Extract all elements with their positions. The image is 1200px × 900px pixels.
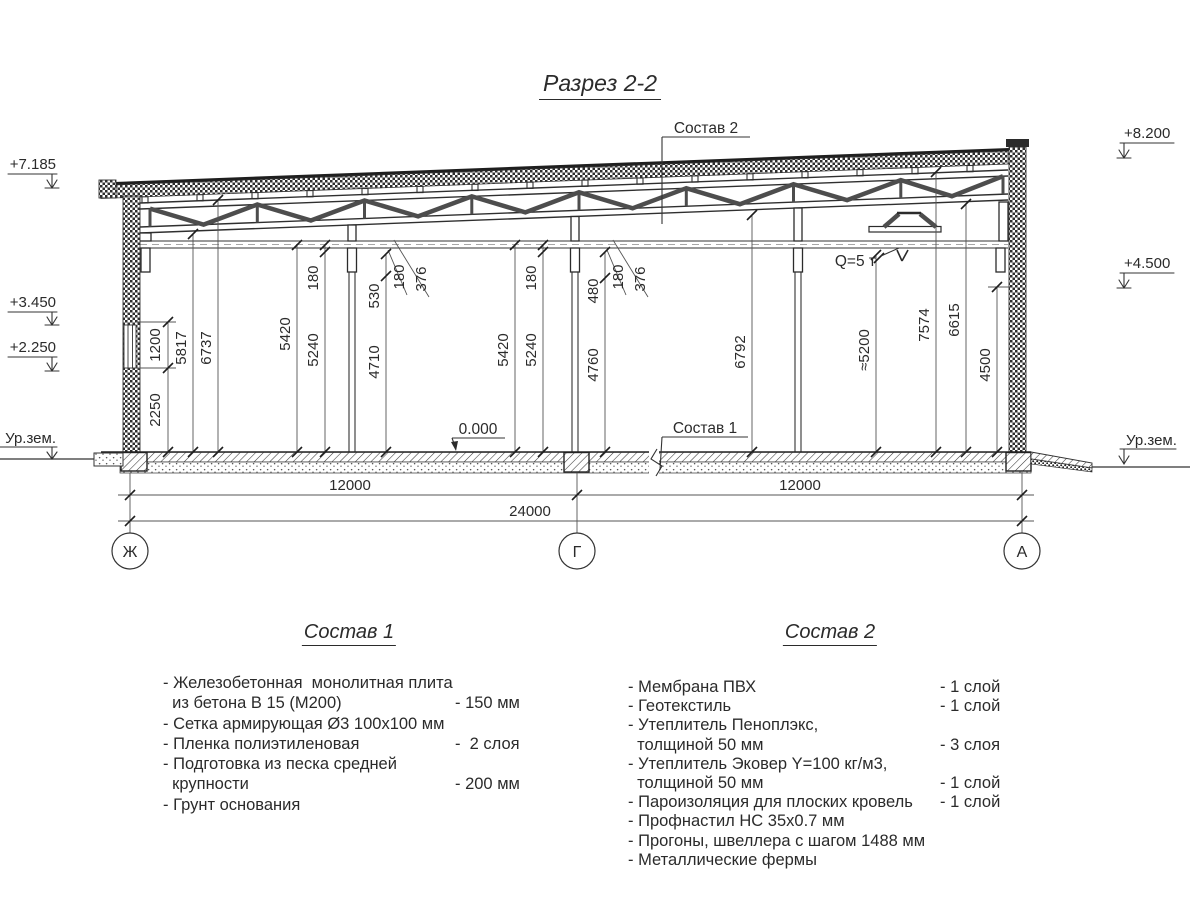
roof-edge-cap — [99, 180, 116, 198]
dim-376-mid: 376 — [632, 266, 649, 291]
wall-right — [1009, 147, 1026, 453]
spec-text: - Утеплитель Пеноплэкс, — [628, 716, 818, 734]
horizontal-dimensions: 12000 12000 24000 Ж Г А — [112, 470, 1040, 569]
spec-value: - 2 слоя — [455, 734, 520, 754]
spec-text: толщиной 50 мм — [628, 736, 764, 754]
spec-text: - Мембрана ПВХ — [628, 678, 756, 696]
elevation-mark-3450: +3.450 — [8, 294, 59, 325]
spec-text: - Утеплитель Эковер Y=100 кг/м3, — [628, 755, 887, 773]
spec-value: - 1 слой — [940, 678, 1000, 697]
elevation-text-4500: +4.500 — [1124, 255, 1170, 272]
foundation-middle — [564, 453, 589, 473]
elevation-text-2250: +2.250 — [10, 339, 56, 356]
spec-text: толщиной 50 мм — [628, 774, 764, 792]
spec-row: - Мембрана ПВХ- 1 слой — [628, 678, 1010, 697]
spec-row: толщиной 50 мм- 3 слоя — [628, 736, 1010, 755]
dim-376-left: 376 — [413, 266, 430, 291]
dim-12000-left: 12000 — [329, 477, 371, 494]
drawing-sheet: 2250 1200 5817 6737 5420 5240 180 530 47… — [0, 0, 1200, 900]
callout-sostav2-text: Состав 2 — [674, 120, 738, 137]
elevation-mark-2250: +2.250 — [8, 339, 59, 371]
axis-label-zh: Ж — [123, 544, 138, 561]
spec-text: - Пленка полиэтиленовая — [163, 735, 359, 753]
composition-2-rows: - Мембрана ПВХ- 1 слой - Геотекстиль- 1 … — [628, 678, 1010, 870]
crane-hoist — [869, 213, 941, 261]
ground-text-left: Ур.зем. — [5, 430, 56, 447]
wall-left — [123, 196, 140, 453]
dim-180-left-leader: 180 — [391, 264, 408, 289]
composition-2-title: Состав 2 — [783, 621, 877, 646]
spec-value: - 3 слоя — [940, 736, 1000, 755]
ground-level-mark-left: Ур.зем. — [0, 430, 57, 459]
dim-2250: 2250 — [147, 393, 164, 426]
spec-text: - Железобетонная монолитная плита — [163, 674, 453, 692]
spec-text: - Подготовка из песка средней — [163, 755, 397, 773]
foundation-left — [121, 453, 147, 472]
composition-1-rows: - Железобетонная монолитная плита из бет… — [163, 673, 545, 815]
parapet-cap-right — [1006, 139, 1029, 147]
spec-row: из бетона В 15 (М200)- 150 мм — [163, 693, 545, 713]
dim-6615: 6615 — [946, 303, 963, 336]
axis-label-a: А — [1017, 544, 1028, 561]
spec-row: - Пленка полиэтиленовая- 2 слоя — [163, 734, 545, 754]
crane-capacity-text: Q=5 т — [835, 253, 876, 270]
spec-row: толщиной 50 мм- 1 слой — [628, 774, 1010, 793]
dim-5200: ≈5200 — [856, 329, 873, 371]
axis-bubbles: Ж Г А — [112, 533, 1040, 569]
spec-row: - Утеплитель Эковер Y=100 кг/м3, — [628, 755, 1010, 774]
spec-text: - Грунт основания — [163, 796, 300, 814]
elevation-mark-4500: +4.500 — [1117, 255, 1174, 288]
dim-4760: 4760 — [585, 348, 602, 381]
dim-7574: 7574 — [916, 308, 933, 341]
callout-zero-level: 0.000 — [451, 421, 505, 451]
spec-row: - Металлические фермы — [628, 851, 1010, 870]
dim-180-mid-leader: 180 — [610, 264, 627, 289]
zero-level-arrowhead — [451, 441, 458, 451]
dim-5817: 5817 — [173, 331, 190, 364]
spec-row: - Подготовка из песка средней — [163, 754, 545, 774]
dim-6792: 6792 — [732, 335, 749, 368]
runway-beam — [140, 241, 1008, 248]
dim-5420-left: 5420 — [277, 317, 294, 350]
floor-slab — [0, 449, 1190, 476]
spec-value: - 200 мм — [455, 774, 520, 794]
foundation-right — [1006, 453, 1031, 472]
apron-left — [94, 453, 123, 466]
dim-6737: 6737 — [198, 331, 215, 364]
spec-text: - Геотекстиль — [628, 697, 731, 715]
elevation-mark-7185: +7.185 — [8, 156, 59, 188]
elevation-mark-8200: +8.200 — [1117, 125, 1174, 158]
callout-crane: Q=5 т — [835, 248, 899, 270]
dim-4500: 4500 — [977, 348, 994, 381]
elevation-text-3450: +3.450 — [10, 294, 56, 311]
spec-text: - Прогоны, швеллера с шагом 1488 мм — [628, 832, 925, 850]
building-section — [0, 139, 1190, 476]
dim-480: 480 — [585, 278, 602, 303]
dim-5420-mid: 5420 — [495, 333, 512, 366]
dim-12000-right: 12000 — [779, 477, 821, 494]
zero-level-text: 0.000 — [459, 421, 498, 438]
spec-text: - Металлические фермы — [628, 851, 817, 869]
spec-row: - Сетка армирующая Ø3 100х100 мм — [163, 714, 545, 734]
spec-text: крупности — [163, 775, 249, 793]
spec-value: - 1 слой — [940, 697, 1000, 716]
dim-1200: 1200 — [147, 328, 164, 361]
spec-text: - Пароизоляция для плоских кровель — [628, 793, 913, 811]
spec-row: крупности- 200 мм — [163, 774, 545, 794]
crane-trolley-plate — [869, 227, 941, 233]
drawing-title: Разрез 2-2 — [539, 70, 661, 100]
spec-row: - Профнастил НС 35х0.7 мм — [628, 812, 1010, 831]
elevation-text-8200: +8.200 — [1124, 125, 1170, 142]
dim-530: 530 — [366, 283, 383, 308]
spec-text: из бетона В 15 (М200) — [163, 694, 342, 712]
spec-row: - Прогоны, швеллера с шагом 1488 мм — [628, 832, 1010, 851]
window-left — [124, 325, 136, 368]
ground-level-mark-right: Ур.зем. — [1119, 432, 1177, 464]
axis-label-g: Г — [573, 544, 582, 561]
spec-row: - Пароизоляция для плоских кровель- 1 сл… — [628, 793, 1010, 812]
dim-5240-left: 5240 — [305, 333, 322, 366]
spec-value: - 1 слой — [940, 793, 1000, 812]
crane-hook-icon — [897, 250, 908, 261]
ground-text-right: Ур.зем. — [1126, 432, 1177, 449]
dim-180-left: 180 — [305, 265, 322, 290]
spec-row: - Утеплитель Пеноплэкс, — [628, 716, 1010, 735]
dim-4710: 4710 — [366, 345, 383, 378]
dim-24000: 24000 — [509, 503, 551, 520]
spec-value: - 1 слой — [940, 774, 1000, 793]
spec-row: - Геотекстиль- 1 слой — [628, 697, 1010, 716]
dim-5240-mid: 5240 — [523, 333, 540, 366]
dim-180-mid: 180 — [523, 265, 540, 290]
elevation-text-7185: +7.185 — [10, 156, 56, 173]
spec-value: - 150 мм — [455, 693, 520, 713]
spec-row: - Железобетонная монолитная плита — [163, 673, 545, 693]
spec-text: - Профнастил НС 35х0.7 мм — [628, 812, 845, 830]
callout-sostav1-text: Состав 1 — [673, 420, 737, 437]
composition-1-title: Состав 1 — [302, 621, 396, 646]
spec-row: - Грунт основания — [163, 795, 545, 815]
spec-text: - Сетка армирующая Ø3 100х100 мм — [163, 715, 445, 733]
